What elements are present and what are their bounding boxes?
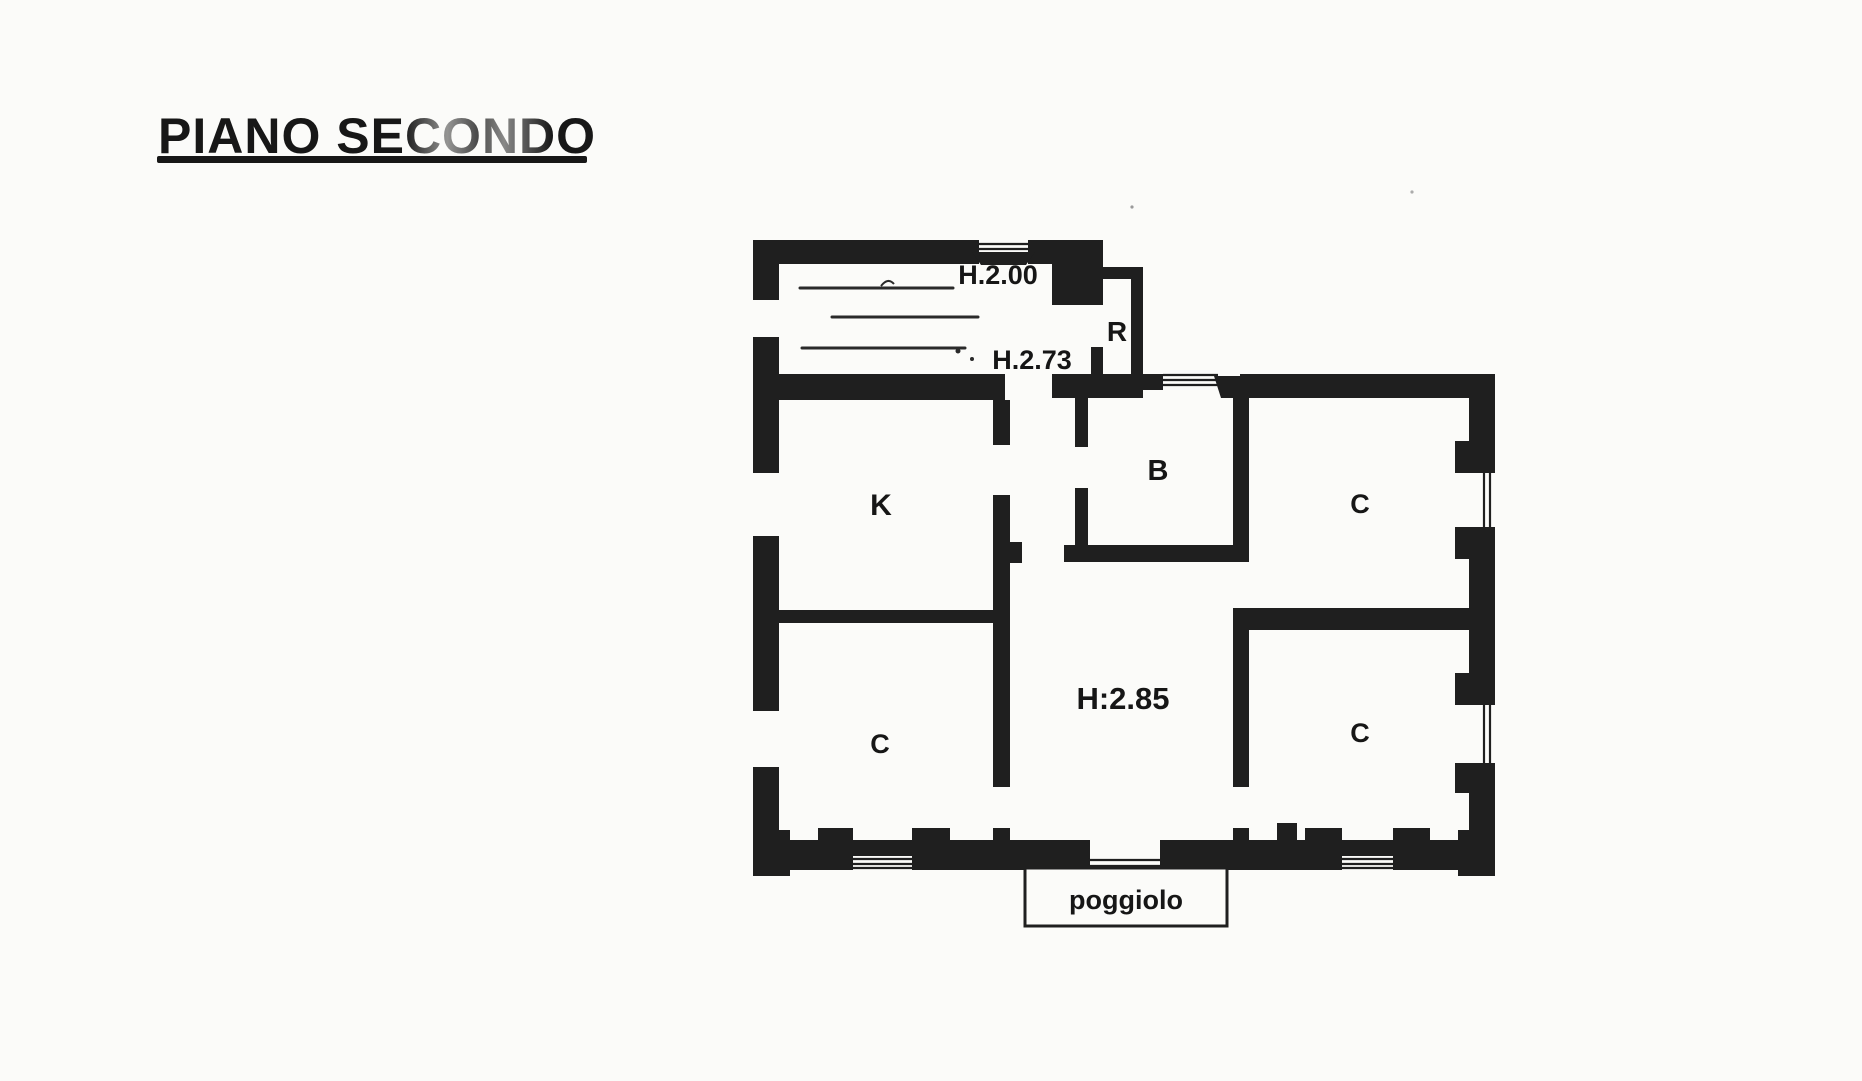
room-label-bottom-right: C	[1350, 718, 1370, 748]
balcony-label: poggiolo	[1069, 885, 1183, 915]
room-label-bottom-left: C	[870, 729, 890, 759]
hall-height-annotation: H:2.85	[1076, 681, 1169, 716]
floor-plan: poggiolo H.2.00 H.2.73 R K B C C C H:2.8…	[0, 0, 1862, 1081]
attic-height-annotation-back: H.2.73	[992, 345, 1072, 375]
attic-slope-lines	[800, 281, 978, 361]
balcony: poggiolo	[1025, 868, 1227, 926]
room-label-bathroom: B	[1148, 455, 1169, 487]
scanned-floor-plan-page: PIANO SECONDO	[0, 0, 1862, 1081]
room-label-top-right: C	[1350, 489, 1370, 519]
room-label-storage: R	[1107, 316, 1127, 347]
attic-height-annotation-front: H.2.00	[958, 260, 1038, 290]
scan-specks	[1130, 190, 1413, 208]
room-label-kitchen: K	[870, 489, 892, 522]
